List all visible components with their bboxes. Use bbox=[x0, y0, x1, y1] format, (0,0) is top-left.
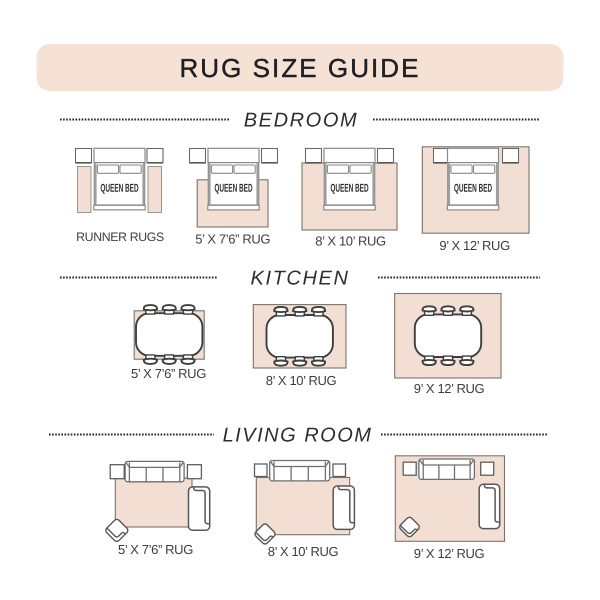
svg-text:BEDROOM: BEDROOM bbox=[244, 110, 359, 132]
svg-text:9’ X 12’ RUG: 9’ X 12’ RUG bbox=[414, 381, 485, 396]
svg-text:9’ X 12’ RUG: 9’ X 12’ RUG bbox=[439, 238, 510, 253]
svg-text:5’ X 7’6” RUG: 5’ X 7’6” RUG bbox=[195, 232, 270, 247]
svg-text:8’ X 10’ RUG: 8’ X 10’ RUG bbox=[315, 234, 386, 249]
svg-text:5’ X 7’6” RUG: 5’ X 7’6” RUG bbox=[131, 366, 206, 381]
svg-text:5’ X 7’6” RUG: 5’ X 7’6” RUG bbox=[118, 542, 193, 557]
svg-text:RUNNER RUGS: RUNNER RUGS bbox=[76, 230, 164, 244]
svg-text:RUG SIZE GUIDE: RUG SIZE GUIDE bbox=[179, 53, 420, 83]
svg-text:9’ X 12’ RUG: 9’ X 12’ RUG bbox=[414, 546, 485, 561]
svg-text:8’ X 10’ RUG: 8’ X 10’ RUG bbox=[266, 373, 337, 388]
svg-text:LIVING ROOM: LIVING ROOM bbox=[223, 425, 373, 447]
svg-text:8’ X 10’ RUG: 8’ X 10’ RUG bbox=[268, 544, 339, 559]
svg-text:KITCHEN: KITCHEN bbox=[251, 268, 350, 290]
